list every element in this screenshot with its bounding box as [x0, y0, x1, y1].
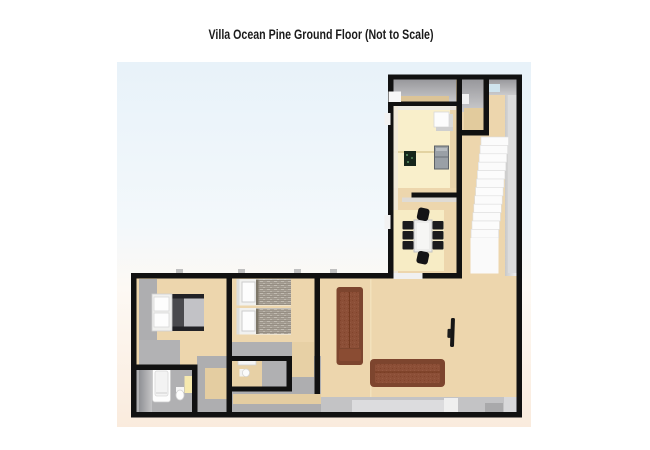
svg-text:Villa Ocean Pine Ground Floor: Villa Ocean Pine Ground Floor (Not to Sc…: [209, 27, 434, 42]
